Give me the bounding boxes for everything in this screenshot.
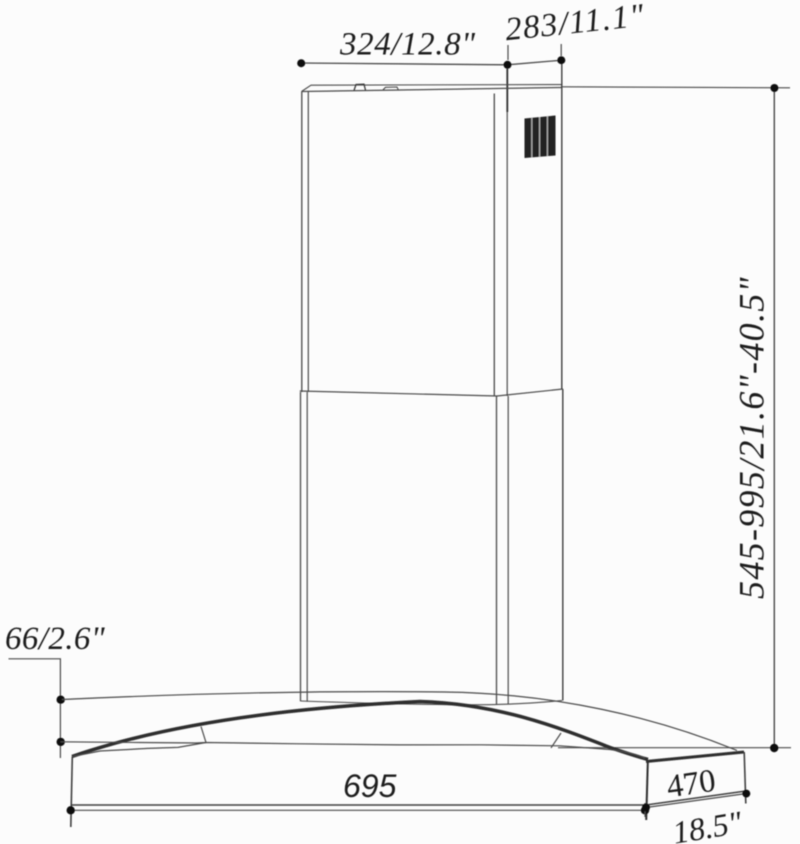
svg-text:324/12.8": 324/12.8" xyxy=(339,27,476,63)
svg-text:66/2.6": 66/2.6" xyxy=(5,621,105,657)
svg-text:545-995/21.6"-40.5": 545-995/21.6"-40.5" xyxy=(732,276,772,599)
svg-text:695: 695 xyxy=(343,768,397,804)
svg-text:470: 470 xyxy=(665,763,718,805)
